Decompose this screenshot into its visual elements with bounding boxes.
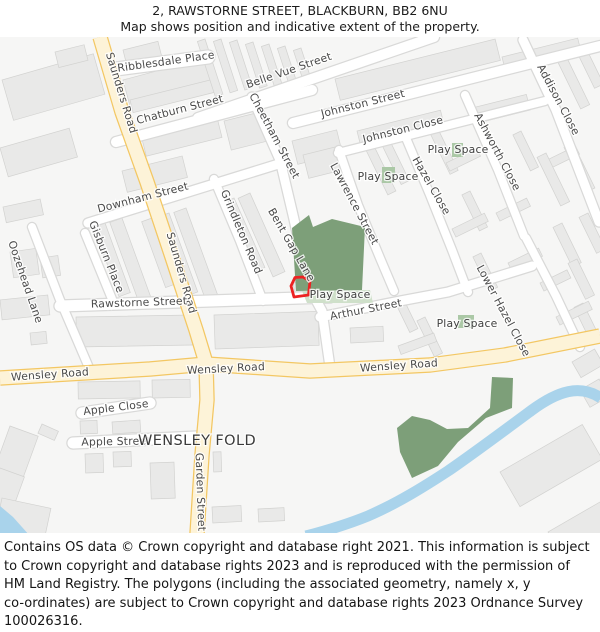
area-label-wensley-fold: WENSLEY FOLD [138,433,256,449]
area-label-play-space-se: Play Space [437,317,498,330]
map-header: 2, RAWSTORNE STREET, BLACKBURN, BB2 6NU … [0,0,600,37]
footer-line: to Crown copyright and database rights 2… [4,558,596,577]
property-address-title: 2, RAWSTORNE STREET, BLACKBURN, BB2 6NU [0,3,600,19]
footer-line: HM Land Registry. The polygons (includin… [4,576,596,595]
area-label-play-space-n: Play Space [358,170,419,183]
map-subtitle: Map shows position and indicative extent… [0,19,600,35]
copyright-footer: Contains OS data © Crown copyright and d… [0,533,600,632]
area-label-play-space-central: Play Space [310,288,371,301]
footer-line: co-ordinates) are subject to Crown copyr… [4,595,596,614]
footer-line: Contains OS data © Crown copyright and d… [4,539,596,558]
footer-line: 100026316. [4,613,596,632]
map-canvas: Ribblesdale Place Saunders Road Chatburn… [0,37,600,533]
area-label-play-space-ne: Play Space [428,143,489,156]
street-label-garden-street: Garden Street [193,453,209,532]
map-svg: Ribblesdale Place Saunders Road Chatburn… [0,37,600,533]
